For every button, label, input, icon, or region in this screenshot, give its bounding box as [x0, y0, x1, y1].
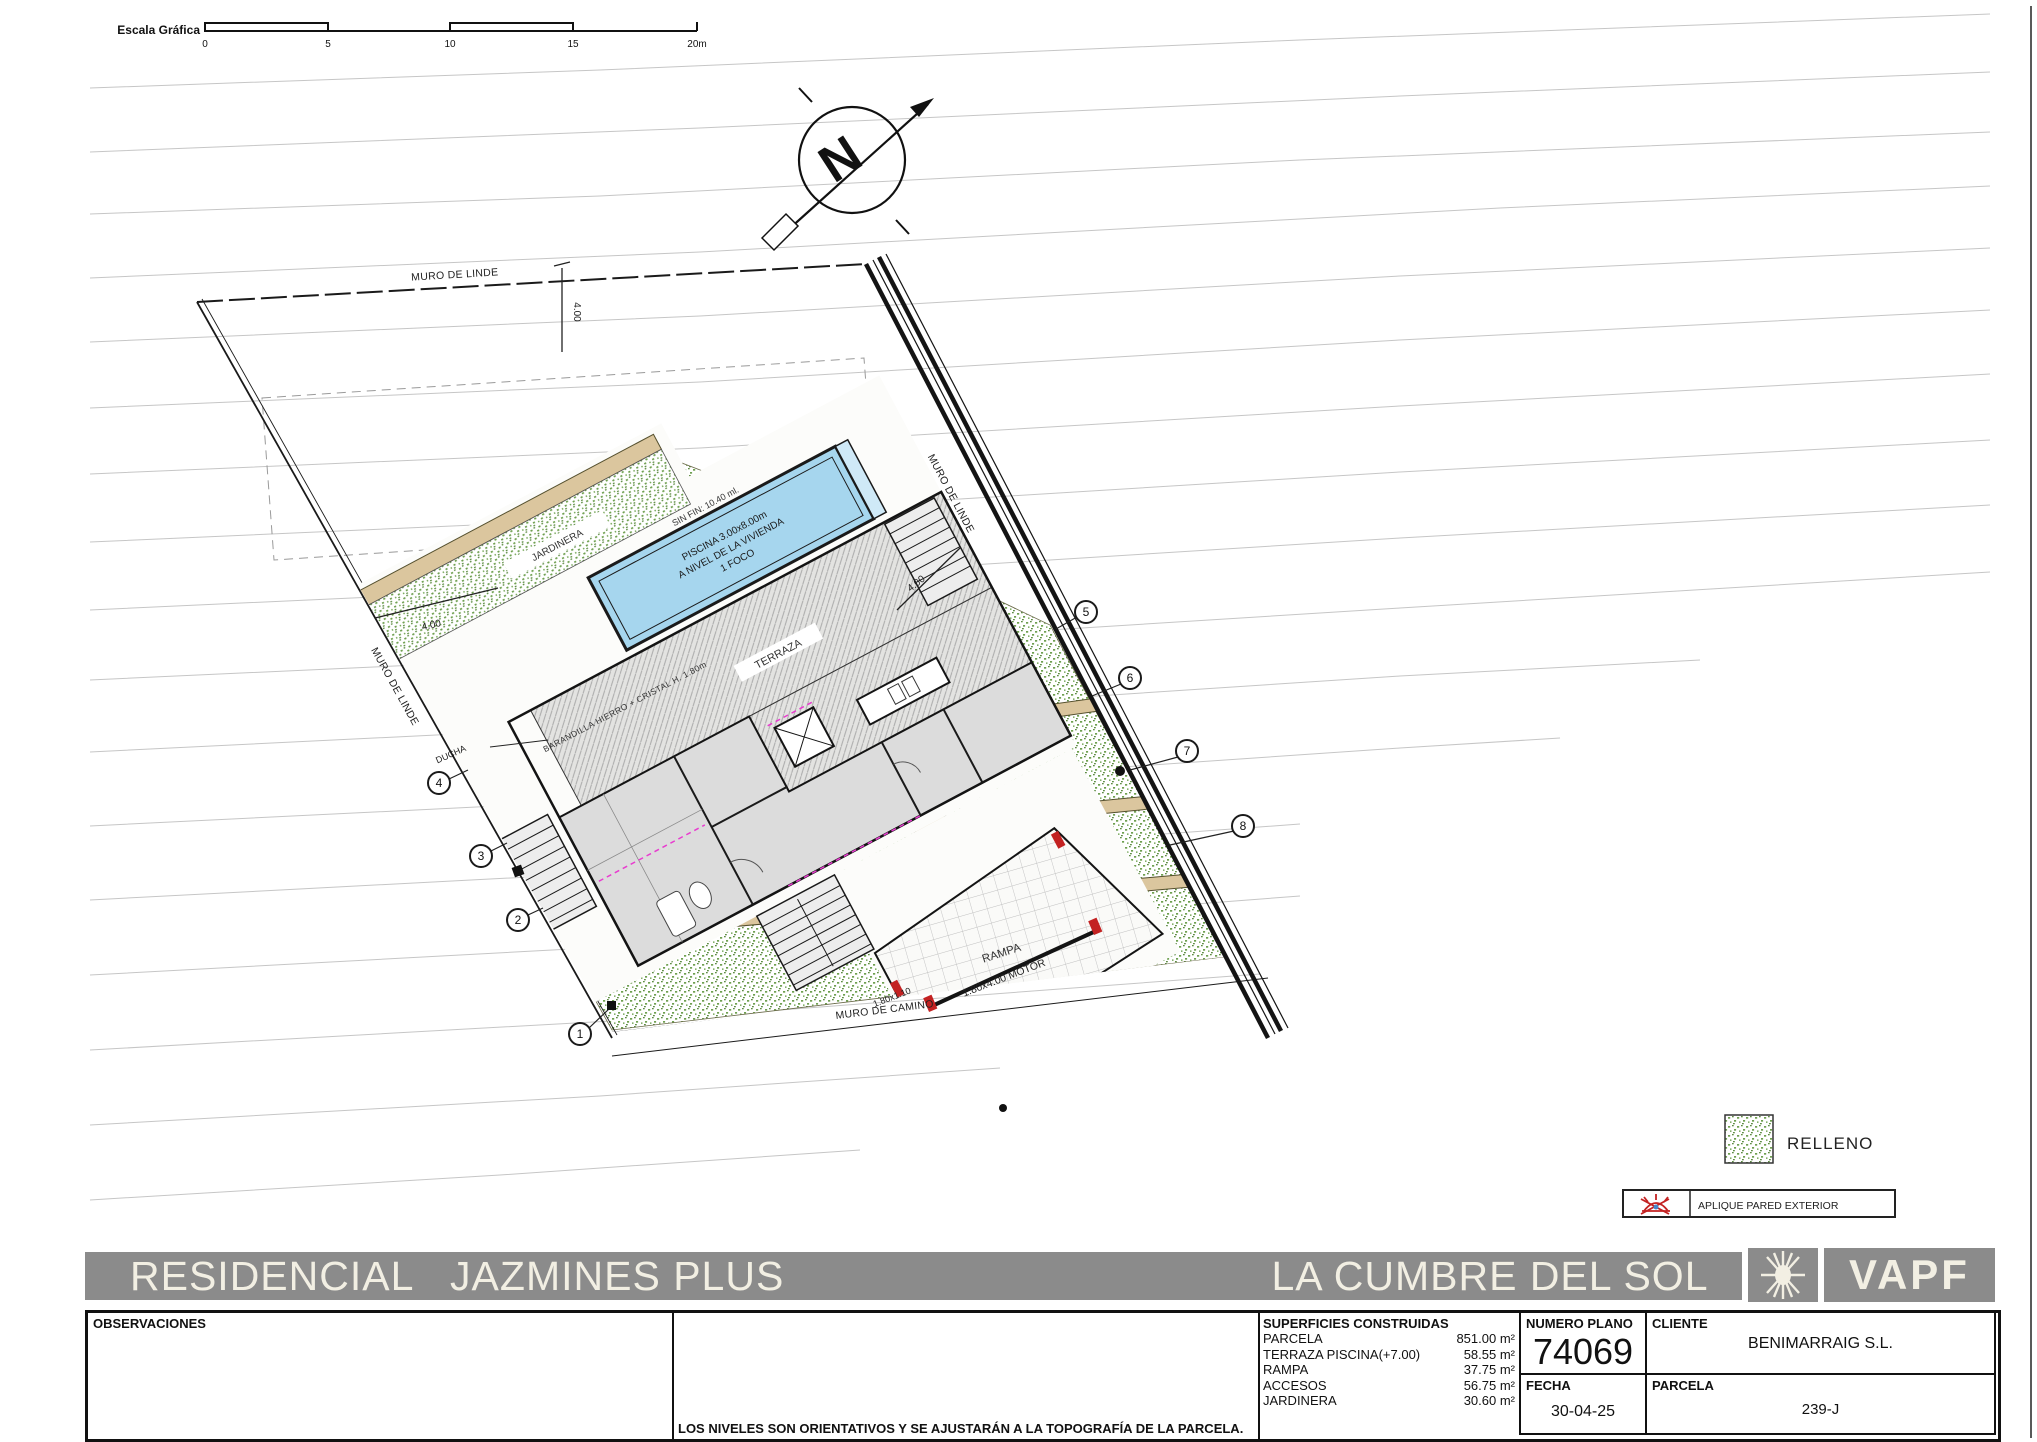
superficies-header: SUPERFICIES CONSTRUIDAS: [1258, 1313, 1521, 1331]
fecha-label: FECHA: [1521, 1375, 1645, 1396]
superficies-row: PARCELA 851.00 m²: [1258, 1331, 1521, 1347]
svg-text:8: 8: [1240, 819, 1247, 833]
north-arrow: N: [762, 88, 934, 250]
scale-tick-5: 5: [325, 39, 331, 50]
resort-title-bar: LA CUMBRE DEL SOL: [1238, 1252, 1742, 1300]
marker-2: 2: [507, 909, 529, 931]
marker-4: 4: [428, 772, 450, 794]
svg-text:2: 2: [515, 913, 522, 927]
vapf-wordmark: VAPF: [1849, 1251, 1970, 1299]
scale-tick-10: 10: [444, 39, 456, 50]
relleno-label: RELLENO: [1787, 1134, 1873, 1153]
row-label: RAMPA: [1263, 1362, 1308, 1378]
row-label: ACCESOS: [1263, 1378, 1327, 1394]
superficies-row: RAMPA 37.75 m²: [1258, 1362, 1521, 1378]
scale-title: Escala Gráfica: [117, 23, 200, 37]
fecha-cell: FECHA 30-04-25: [1519, 1373, 1647, 1435]
scale-tick-15: 15: [567, 39, 579, 50]
svg-text:6: 6: [1127, 671, 1134, 685]
row-label: PARCELA: [1263, 1331, 1323, 1347]
project-title-bar: RESIDENCIAL JAZMINES PLUS: [85, 1252, 1277, 1300]
sun-logo-icon: [1748, 1248, 1818, 1302]
superficies-cell: SUPERFICIES CONSTRUIDAS PARCELA 851.00 m…: [1258, 1313, 1521, 1439]
levels-note: LOS NIVELES SON ORIENTATIVOS Y SE AJUSTA…: [678, 1421, 1243, 1436]
sun-logo: [1748, 1248, 1818, 1302]
observaciones-cell: OBSERVACIONES: [88, 1313, 672, 1439]
muro-linde-top-label: MURO DE LINDE: [411, 266, 499, 283]
relleno-swatch: [1725, 1115, 1773, 1163]
row-value: 30.60 m²: [1464, 1393, 1515, 1409]
marker-1: 1: [569, 1023, 591, 1045]
aplique-label: APLIQUE PARED EXTERIOR: [1698, 1200, 1839, 1212]
svg-text:1: 1: [577, 1027, 584, 1041]
svg-text:5: 5: [1083, 605, 1090, 619]
svg-text:4: 4: [436, 776, 443, 790]
note-cell: LOS NIVELES SON ORIENTATIVOS Y SE AJUSTA…: [672, 1313, 1258, 1439]
marker-7: 7: [1176, 740, 1198, 762]
row-value: 58.55 m²: [1464, 1347, 1515, 1363]
marker-6: 6: [1119, 667, 1141, 689]
svg-text:7: 7: [1184, 744, 1191, 758]
row-value: 37.75 m²: [1464, 1362, 1515, 1378]
cliente-label: CLIENTE: [1647, 1313, 1994, 1334]
row-value: 851.00 m²: [1456, 1331, 1515, 1347]
numero-plano-cell: NUMERO PLANO 74069: [1519, 1311, 1647, 1375]
resort-title: LA CUMBRE DEL SOL: [1271, 1253, 1708, 1300]
fecha-value: 30-04-25: [1521, 1403, 1645, 1421]
cliente-value: BENIMARRAIG S.L.: [1647, 1335, 1994, 1353]
plan-sheet: { "scale_bar": { "title": "Escala Gráfic…: [0, 0, 2037, 1440]
superficies-row: TERRAZA PISCINA(+7.00) 58.55 m²: [1258, 1347, 1521, 1363]
parcela-label: PARCELA: [1647, 1375, 1994, 1396]
dim-top-label: 4.00: [571, 302, 582, 322]
row-label: TERRAZA PISCINA(+7.00): [1263, 1347, 1420, 1363]
vapf-logo: VAPF: [1824, 1248, 1995, 1302]
marker-5: 5: [1075, 601, 1097, 623]
row-value: 56.75 m²: [1464, 1378, 1515, 1394]
numero-plano-value: 74069: [1521, 1331, 1645, 1373]
row-label: JARDINERA: [1263, 1393, 1337, 1409]
cliente-cell: CLIENTE BENIMARRAIG S.L.: [1645, 1311, 1996, 1375]
site-plan-drawing: JARDINERA SIN FIN: 10.40 ml. PISCINA 3.0…: [0, 0, 2037, 1440]
title-block: OBSERVACIONES LOS NIVELES SON ORIENTATIV…: [85, 1310, 2001, 1442]
marker-3: 3: [470, 845, 492, 867]
parcela-value: 239-J: [1647, 1401, 1994, 1418]
legend: RELLENO APLIQUE PARED EXTERIOR: [1623, 1115, 1895, 1217]
north-letter: N: [809, 125, 872, 194]
svg-text:3: 3: [478, 849, 485, 863]
marker-8: 8: [1232, 815, 1254, 837]
observaciones-label: OBSERVACIONES: [88, 1313, 672, 1334]
scale-bar: Escala Gráfica 0 5 10 15 20m: [117, 22, 706, 50]
scale-tick-20: 20m: [687, 39, 706, 50]
project-title: RESIDENCIAL JAZMINES PLUS: [130, 1253, 784, 1300]
scale-tick-0: 0: [202, 39, 208, 50]
superficies-row: ACCESOS 56.75 m²: [1258, 1378, 1521, 1394]
parcela-cell: PARCELA 239-J: [1645, 1373, 1996, 1435]
superficies-row: JARDINERA 30.60 m²: [1258, 1393, 1521, 1409]
